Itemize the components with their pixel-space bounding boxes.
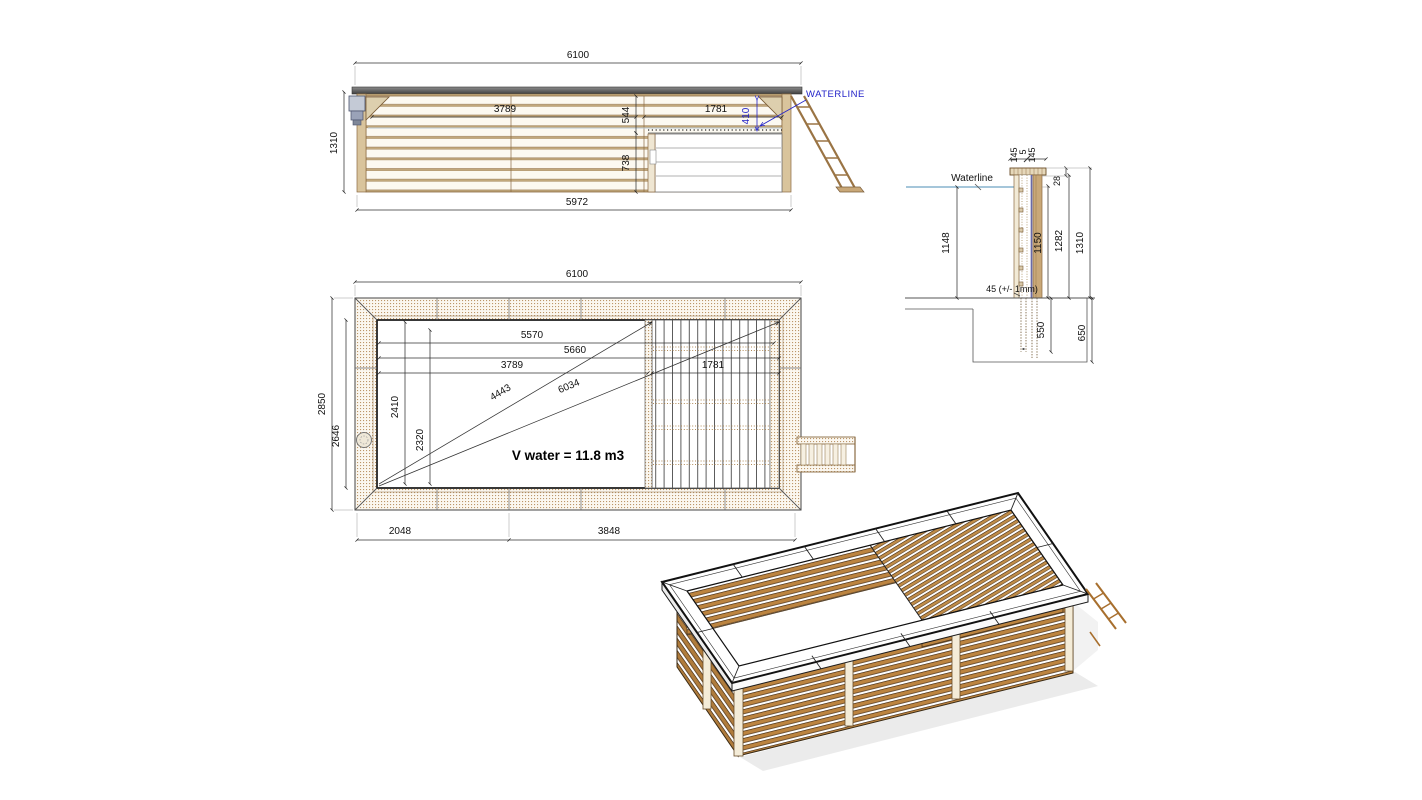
dim-elevation-5972: 5972 (566, 197, 589, 208)
dim-plan-2320: 2320 (415, 428, 426, 451)
plan-deck (645, 320, 779, 488)
waterline-label-section: Waterline (951, 173, 993, 184)
section-view: Waterline (905, 147, 1095, 362)
dim-plan-3848: 3848 (598, 526, 621, 537)
dim-elevation-1781: 1781 (705, 104, 728, 115)
isometric-view (662, 493, 1126, 771)
section-ground (905, 298, 1095, 362)
dim-plan-6100: 6100 (566, 269, 589, 280)
dim-section-1282: 1282 (1054, 229, 1065, 252)
iso-corner-post (1065, 599, 1073, 671)
dim-plan-2850: 2850 (317, 392, 328, 415)
dim-section-28: 28 (1052, 176, 1062, 186)
dim-section-650: 650 (1077, 324, 1088, 341)
technical-drawing-sheet: 6100 1310 5972 3789 544 738 1781 410 WAT… (0, 0, 1422, 800)
dim-elevation-738: 738 (621, 154, 632, 171)
dim-section-550: 550 (1036, 321, 1047, 338)
dim-plan-2646: 2646 (331, 424, 342, 447)
dim-elevation-3789: 3789 (494, 104, 517, 115)
water-volume-label: V water = 11.8 m3 (512, 448, 625, 463)
dim-section-145b: 145 (1027, 147, 1037, 162)
elevation-coping (352, 87, 802, 94)
plan-ladder (797, 437, 855, 472)
dim-plan-5660: 5660 (564, 345, 587, 356)
dim-elevation-544: 544 (621, 106, 632, 123)
dim-plan-2048: 2048 (389, 526, 412, 537)
elevation-right-post (782, 94, 791, 192)
elevation-pool-body (349, 87, 864, 192)
elevation-view: 6100 1310 5972 3789 544 738 1781 410 WAT… (329, 50, 865, 210)
dim-section-1150: 1150 (1033, 232, 1044, 254)
dim-plan-1781: 1781 (702, 360, 725, 371)
dim-elevation-410: 410 (741, 107, 752, 124)
dim-plan-3789: 3789 (501, 360, 524, 371)
elevation-ladder (791, 96, 864, 192)
dim-plan-5570: 5570 (521, 330, 544, 341)
plan-view: 6100 2850 2646 5570 5660 3789 1781 2410 … (317, 269, 855, 540)
dim-plan-2410: 2410 (390, 395, 401, 418)
dim-elevation-1310: 1310 (329, 131, 340, 154)
iso-post (845, 652, 853, 726)
dim-elevation-6100: 6100 (567, 50, 590, 61)
plan-skimmer (357, 433, 372, 448)
waterline-label-elevation: WATERLINE (806, 89, 865, 100)
dim-section-1310: 1310 (1075, 231, 1086, 254)
elevation-deck (648, 130, 782, 192)
dim-section-plank-thickness: 45 (+/- 1mm) (986, 284, 1038, 294)
dim-section-1148: 1148 (941, 232, 952, 254)
pool-drawing: 6100 1310 5972 3789 544 738 1781 410 WAT… (0, 0, 1422, 800)
